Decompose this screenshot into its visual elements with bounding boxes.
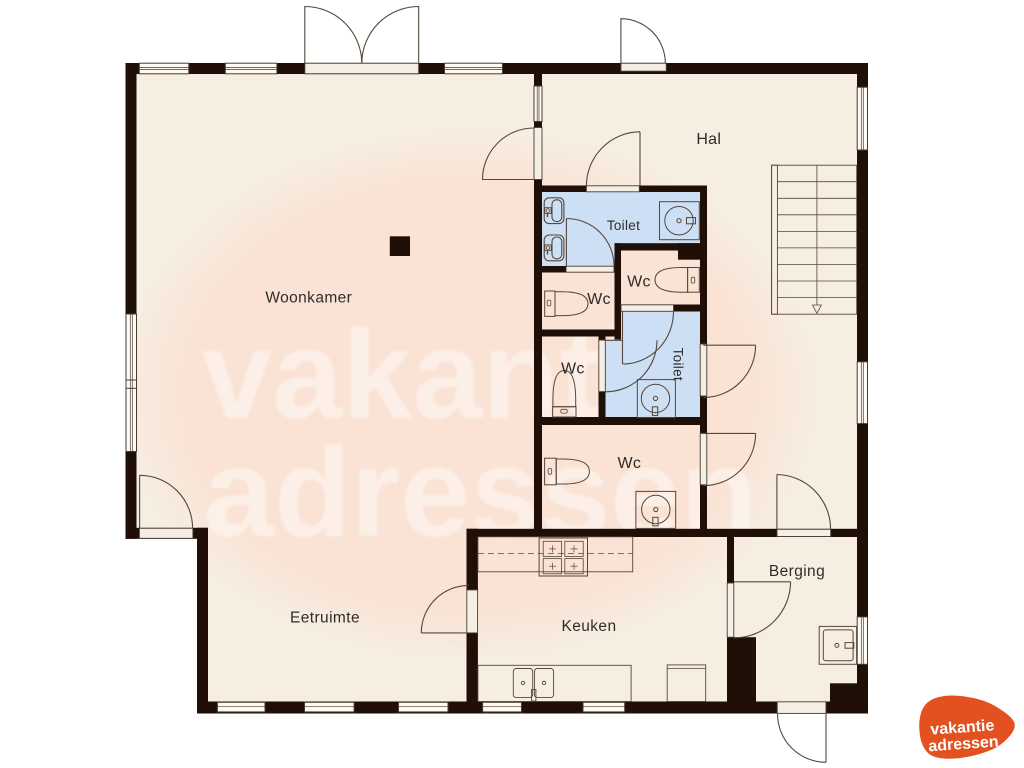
svg-text:Keuken: Keuken	[562, 618, 617, 635]
svg-text:adressen: adressen	[204, 422, 757, 563]
svg-text:Toilet: Toilet	[671, 348, 686, 381]
svg-text:Toilet: Toilet	[607, 218, 640, 233]
svg-text:Wc: Wc	[587, 291, 611, 308]
svg-text:Hal: Hal	[696, 131, 721, 148]
svg-text:Berging: Berging	[769, 563, 825, 580]
svg-text:Woonkamer: Woonkamer	[265, 290, 352, 307]
svg-text:Eetruimte: Eetruimte	[290, 609, 360, 626]
svg-text:Wc: Wc	[617, 455, 641, 472]
svg-text:Wc: Wc	[627, 273, 651, 290]
svg-text:Wc: Wc	[561, 360, 585, 377]
